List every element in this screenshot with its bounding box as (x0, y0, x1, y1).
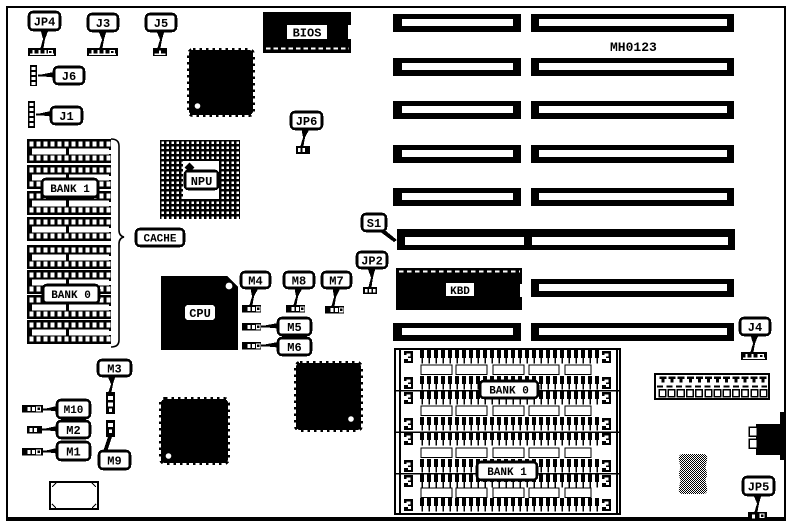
svg-text:JP4: JP4 (34, 15, 56, 29)
svg-text:J1: J1 (59, 110, 73, 124)
svg-text:S1: S1 (367, 217, 381, 231)
svg-text:JP5: JP5 (748, 480, 770, 494)
svg-text:BANK 1: BANK 1 (50, 184, 90, 196)
svg-text:CPU: CPU (189, 307, 211, 321)
svg-text:CACHE: CACHE (143, 234, 176, 246)
svg-text:JP2: JP2 (361, 254, 383, 268)
svg-text:BIOS: BIOS (293, 27, 322, 41)
svg-text:M4: M4 (248, 274, 262, 288)
svg-text:MH0123: MH0123 (610, 40, 657, 55)
svg-text:M3: M3 (107, 362, 121, 376)
svg-text:M6: M6 (287, 341, 301, 355)
svg-text:J3: J3 (96, 17, 110, 31)
svg-text:M2: M2 (66, 424, 80, 438)
svg-text:M1: M1 (66, 445, 80, 459)
svg-text:NPU: NPU (191, 175, 213, 189)
svg-text:J6: J6 (62, 70, 76, 84)
svg-text:M7: M7 (329, 274, 343, 288)
svg-text:J5: J5 (154, 17, 168, 31)
svg-text:M8: M8 (292, 274, 306, 288)
svg-text:BANK 0: BANK 0 (51, 290, 91, 302)
svg-text:KBD: KBD (450, 286, 470, 298)
svg-text:J4: J4 (748, 321, 762, 335)
svg-text:M9: M9 (107, 454, 121, 468)
svg-text:BANK 0: BANK 0 (489, 386, 529, 398)
svg-text:BANK 1: BANK 1 (487, 467, 527, 479)
svg-text:JP6: JP6 (296, 115, 318, 129)
svg-text:M5: M5 (287, 321, 301, 335)
svg-text:M10: M10 (64, 405, 84, 417)
